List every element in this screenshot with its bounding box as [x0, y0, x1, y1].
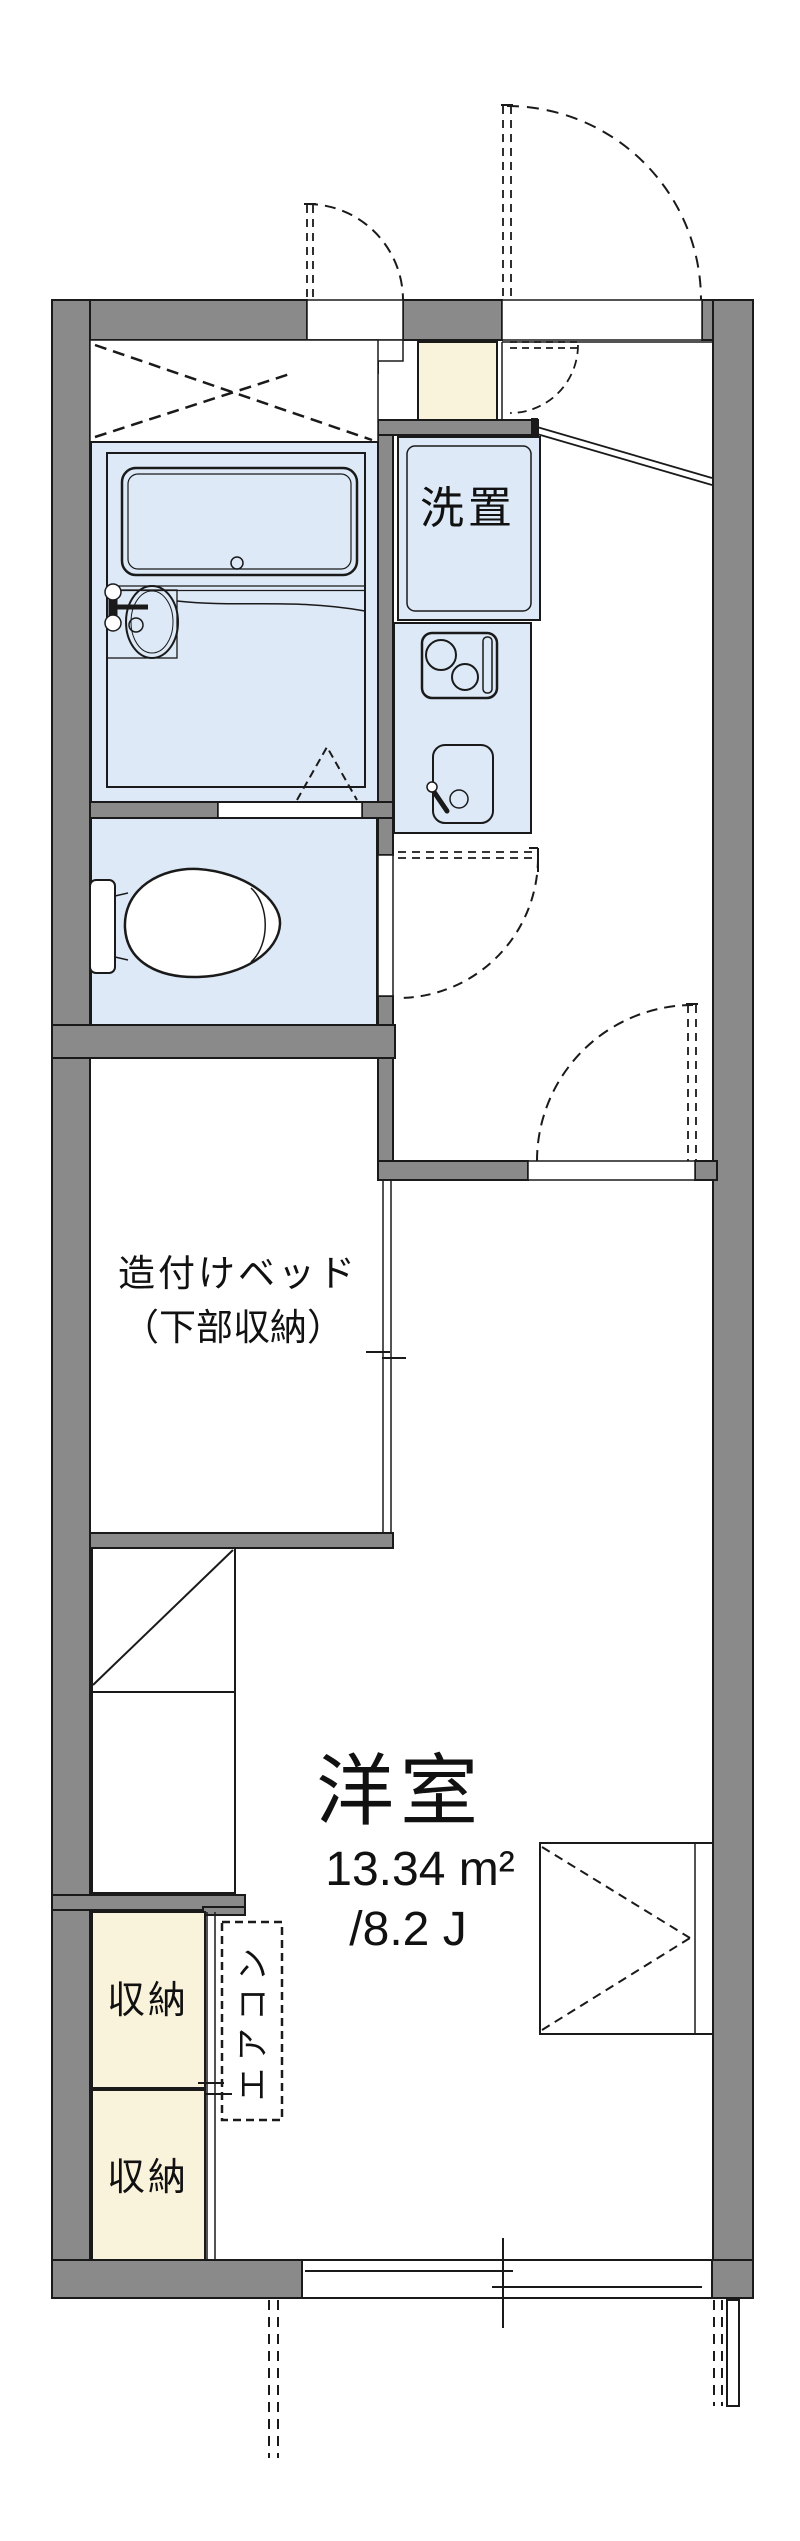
- aircon-label: エアコン: [234, 1941, 271, 2101]
- aircon-area: エアコン: [222, 1922, 282, 2120]
- shoe-cabinet: [418, 342, 497, 420]
- wall-hall-room-right: [695, 1161, 717, 1180]
- washer-label: 洗置: [420, 484, 516, 533]
- wall-bed-bottom: [90, 1533, 393, 1548]
- bed-label-line2: （下部収納）: [122, 1307, 344, 1348]
- storage-lower-label: 収納: [107, 2157, 189, 2199]
- toilet-tank: [90, 880, 115, 973]
- desk-body: [540, 1843, 713, 2034]
- service-closet: [90, 340, 378, 442]
- counter-desk: [540, 1843, 713, 2034]
- wall-bottom-right: [712, 2260, 753, 2298]
- kitchen-faucet-base: [427, 782, 437, 792]
- window-frame: [302, 2260, 712, 2298]
- kitchen: [394, 623, 531, 833]
- balcony-partition: [727, 2300, 739, 2406]
- wall-central-lower: [378, 996, 393, 1161]
- entry-step-line-1: [537, 427, 712, 478]
- storage-upper-label: 収納: [107, 1980, 189, 2022]
- toilet-door-arc: [398, 858, 538, 998]
- wall-left: [52, 300, 90, 2298]
- wall-hall-room-left: [378, 1161, 528, 1180]
- room-area-m2-label: 13.34 m²: [325, 1843, 514, 1896]
- entry-step-line-2: [537, 434, 712, 485]
- wall-bottom-left: [52, 2260, 302, 2298]
- toilet-room: [90, 818, 377, 1025]
- service-door-arc: [307, 204, 403, 300]
- bathroom: [91, 442, 378, 802]
- wall-top-mid: [403, 300, 502, 340]
- storage-area: 収納 収納: [92, 1912, 232, 2260]
- floor-plan-drawing: 洗置: [0, 0, 800, 2541]
- wall-bath-bottom-left: [90, 802, 218, 818]
- main-room: 洋室 13.34 m² /8.2 J: [316, 1747, 515, 1956]
- opening-entrance-door: [502, 300, 702, 340]
- kitchen-counter: [394, 623, 531, 833]
- opening-toilet-door: [378, 855, 393, 996]
- shoe-door-arc: [510, 345, 578, 413]
- bottom-window: [302, 2238, 712, 2328]
- wall-right: [713, 300, 753, 2298]
- floor-plan-page: 洗置: [0, 0, 800, 2541]
- wall-central-upper: [378, 435, 393, 855]
- bathroom-floor: [91, 442, 378, 802]
- wall-bath-bottom-right: [362, 802, 393, 818]
- room-door-arc: [537, 1005, 693, 1161]
- wall-toilet-bottom: [52, 1025, 395, 1058]
- opening-bath-door: [218, 802, 362, 818]
- room-area-tatami-label: /8.2 J: [349, 1903, 466, 1956]
- wall-washer-nook: [378, 420, 538, 435]
- entrance-door-arc: [507, 106, 701, 300]
- bath-faucet-knob-top: [105, 584, 121, 600]
- opening-room-door: [528, 1161, 695, 1180]
- opening-service-door: [307, 300, 403, 340]
- bed-label-line1: 造付けベッド: [118, 1253, 358, 1294]
- bath-faucet-knob-bottom: [105, 615, 121, 631]
- bed-step-unit: [92, 1548, 235, 1893]
- washer-area: 洗置: [398, 437, 540, 620]
- room-name-label: 洋室: [316, 1747, 484, 1835]
- wall-storage-top-step: [203, 1907, 245, 1915]
